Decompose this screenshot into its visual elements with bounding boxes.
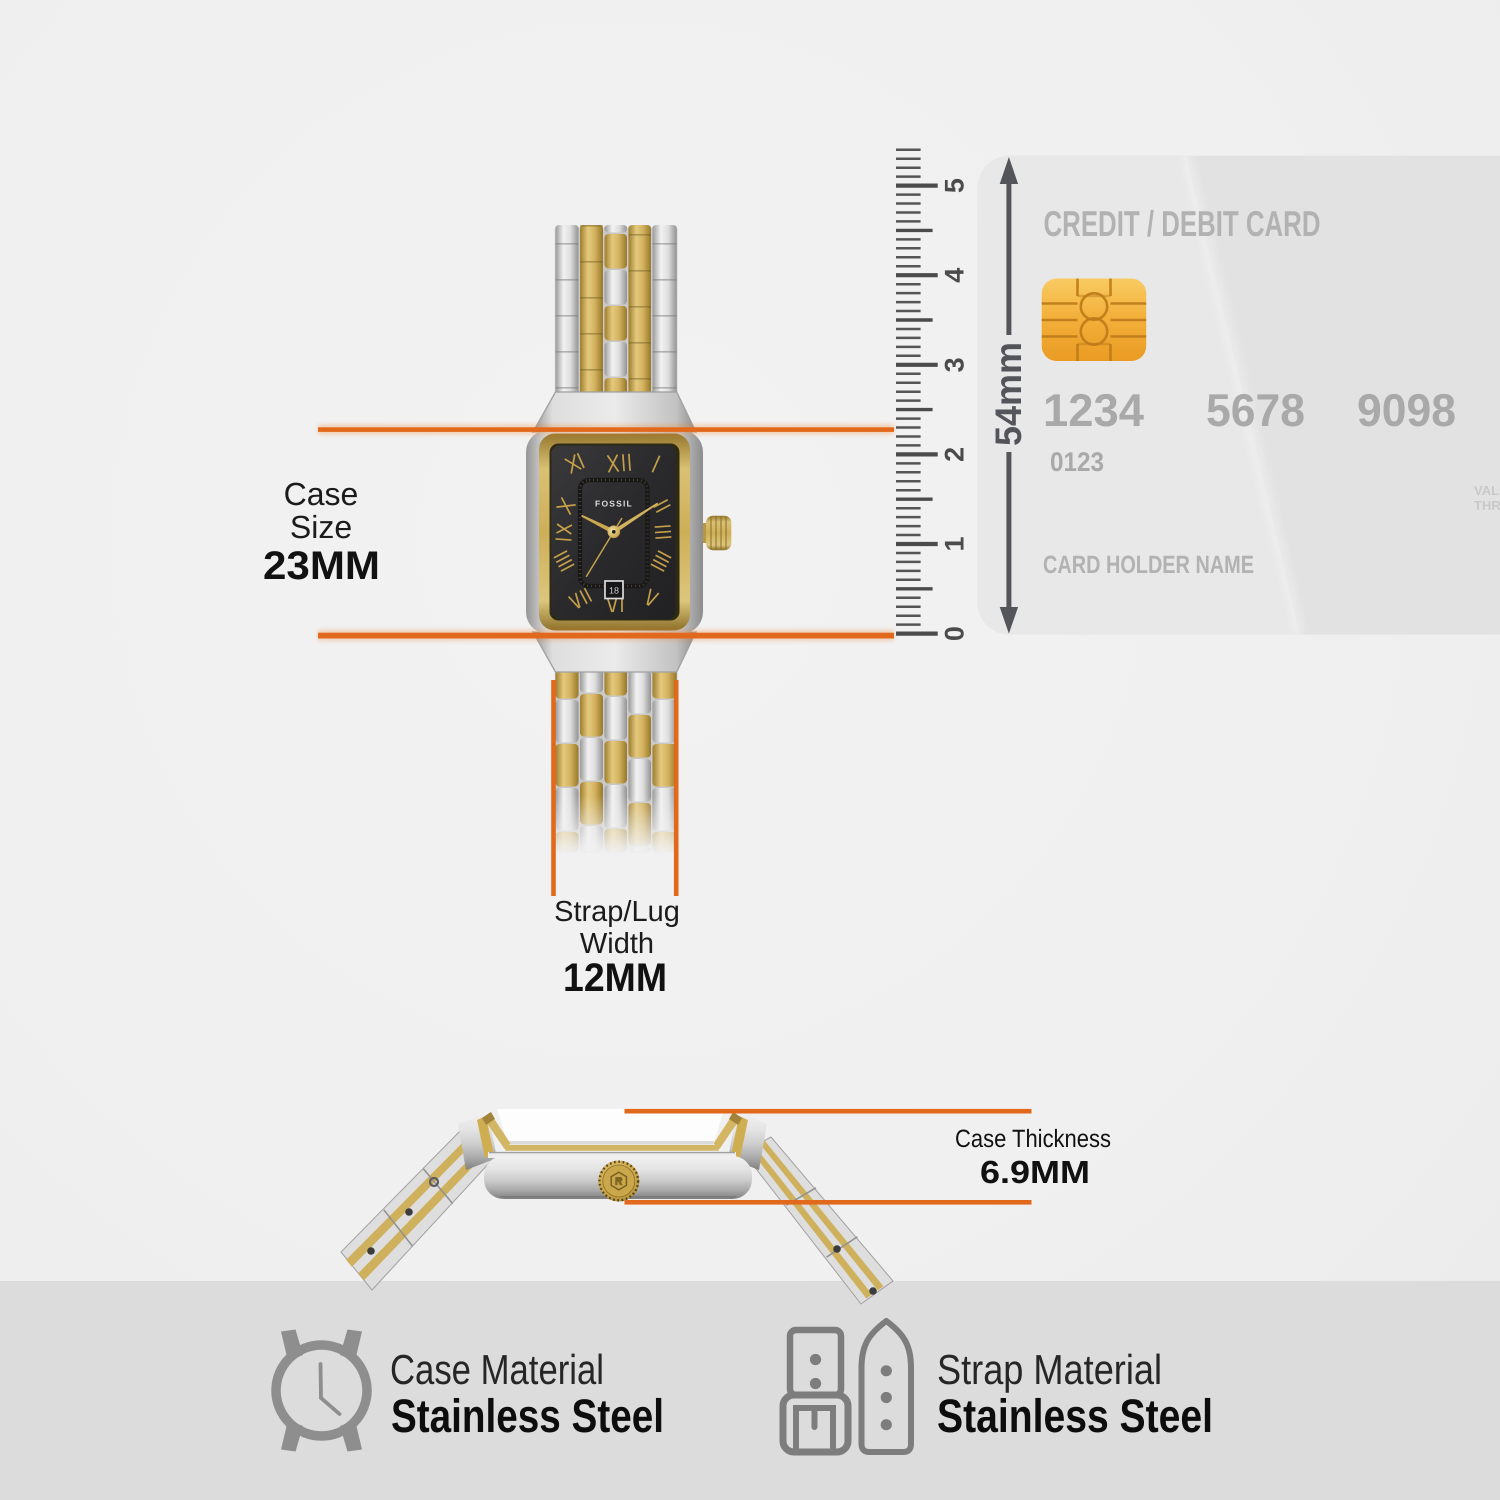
svg-text:18: 18 [609,586,619,596]
svg-text:0123: 0123 [1050,447,1104,477]
svg-text:Stainless Steel: Stainless Steel [391,1389,664,1442]
svg-text:VALID: VALID [1474,483,1500,498]
svg-text:6.9MM: 6.9MM [980,1154,1090,1190]
svg-text:5: 5 [940,178,970,193]
svg-text:THRU: THRU [1474,498,1500,513]
svg-text:FOSSIL: FOSSIL [595,499,633,509]
svg-text:Case: Case [284,476,359,512]
svg-text:54mm: 54mm [988,342,1029,446]
svg-text:Strap Material: Strap Material [937,1346,1162,1393]
svg-text:2: 2 [940,447,970,462]
svg-text:Strap/Lug: Strap/Lug [554,896,680,928]
svg-text:CREDIT / DEBIT CARD: CREDIT / DEBIT CARD [1044,203,1321,244]
svg-text:Stainless Steel: Stainless Steel [937,1389,1213,1442]
svg-text:Case Material: Case Material [390,1346,604,1393]
svg-text:CARD HOLDER NAME: CARD HOLDER NAME [1043,551,1254,579]
svg-text:0: 0 [940,626,970,641]
svg-text:Size: Size [290,509,352,545]
svg-text:1234: 1234 [1043,384,1144,436]
svg-text:12MM: 12MM [563,956,667,1000]
svg-text:4: 4 [940,268,970,283]
svg-text:Case Thickness: Case Thickness [955,1125,1111,1153]
svg-text:5678: 5678 [1206,384,1305,436]
svg-text:9098: 9098 [1357,384,1456,436]
svg-text:1: 1 [940,536,970,551]
svg-text:23MM: 23MM [263,544,380,588]
svg-text:3: 3 [940,357,970,372]
